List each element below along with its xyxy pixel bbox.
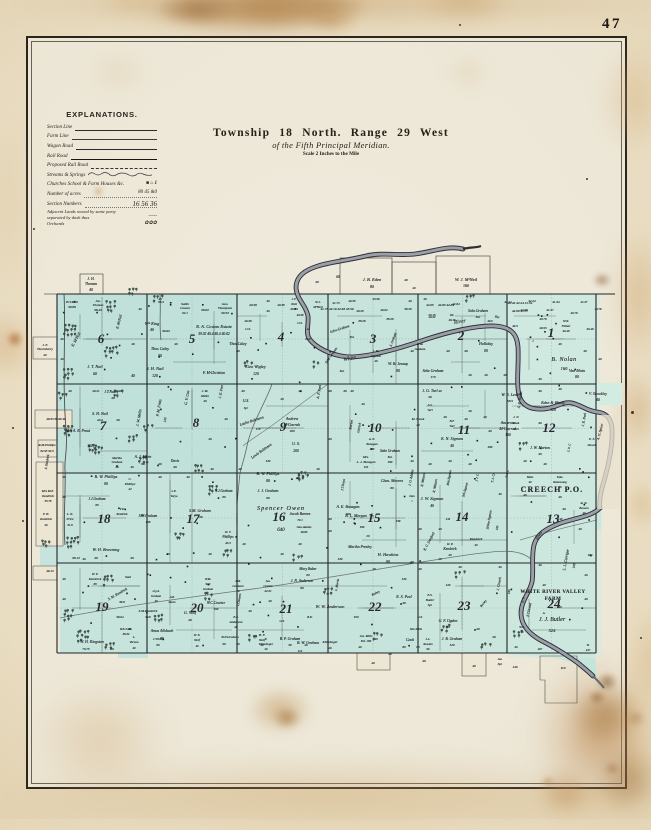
svg-text:40: 40: [328, 529, 332, 533]
svg-text:40.78: 40.78: [595, 307, 602, 311]
svg-text:40: 40: [484, 373, 488, 377]
svg-text:H.V.Rich: H.V.Rich: [65, 300, 78, 304]
svg-text:Est.: Est.: [349, 335, 355, 339]
svg-text:40: 40: [45, 523, 49, 527]
svg-text:Geo.Adams: Geo.Adams: [297, 525, 313, 529]
svg-text:22: 22: [368, 599, 383, 614]
svg-text:40: 40: [468, 409, 472, 413]
svg-text:140: 140: [558, 517, 563, 521]
svg-text:40: 40: [464, 417, 468, 421]
svg-text:A.: A.: [542, 611, 546, 615]
svg-text:Nail: Nail: [290, 302, 297, 306]
svg-text:Mary Baker: Mary Baker: [298, 567, 317, 571]
svg-text:170: 170: [256, 427, 261, 431]
svg-text:40: 40: [584, 597, 588, 601]
svg-text:40: 40: [448, 459, 452, 463]
svg-text:40: 40: [423, 297, 427, 301]
svg-text:40: 40: [428, 462, 432, 466]
svg-text:Scho: Scho: [417, 342, 424, 346]
svg-text:Kendrick: Kendrick: [41, 494, 54, 498]
svg-text:Bowan: Bowan: [579, 506, 589, 510]
svg-text:40: 40: [418, 527, 422, 531]
svg-text:160: 160: [505, 433, 511, 437]
svg-text:Jas.: Jas.: [498, 657, 503, 661]
svg-text:42: 42: [128, 487, 132, 491]
svg-text:40: 40: [248, 609, 252, 613]
svg-text:41.37: 41.37: [581, 300, 588, 304]
svg-text:Turl: Turl: [449, 424, 454, 428]
svg-text:40: 40: [133, 646, 137, 650]
svg-text:49.13: 49.13: [46, 569, 54, 573]
svg-text:40: 40: [155, 599, 159, 603]
svg-text:40: 40: [468, 462, 472, 466]
svg-text:40.36: 40.36: [277, 303, 285, 307]
svg-text:90: 90: [266, 496, 270, 500]
svg-text:40: 40: [372, 567, 376, 571]
svg-text:40: 40: [242, 542, 246, 546]
svg-text:18: 18: [98, 511, 112, 526]
svg-text:40: 40: [62, 417, 66, 421]
svg-text:80: 80: [104, 482, 108, 486]
svg-text:40: 40: [361, 402, 365, 406]
svg-text:W.E.T.R.S.: W.E.T.R.S.: [120, 627, 133, 631]
svg-text:112: 112: [298, 649, 303, 653]
svg-text:40: 40: [374, 359, 378, 363]
svg-text:40: 40: [443, 415, 447, 419]
svg-text:Est.: Est.: [387, 455, 393, 459]
svg-text:40: 40: [538, 421, 542, 425]
svg-text:Felker: Felker: [561, 324, 572, 328]
svg-text:40.32: 40.32: [429, 315, 436, 319]
svg-text:150: 150: [87, 444, 93, 448]
svg-text:40: 40: [116, 418, 120, 422]
svg-text:40: 40: [410, 459, 414, 463]
svg-text:W.: W.: [587, 643, 590, 647]
svg-text:80: 80: [222, 495, 226, 499]
svg-text:41.37: 41.37: [546, 308, 554, 312]
svg-text:20.16: 20.16: [449, 318, 456, 322]
svg-text:40: 40: [410, 349, 414, 353]
svg-text:F. MᶜChristian: F. MᶜChristian: [202, 371, 225, 375]
svg-text:J.G.: J.G.: [427, 403, 433, 407]
svg-text:39.92 40.4 40.4 40.02: 39.92 40.4 40.4 40.02: [198, 332, 230, 336]
svg-text:Vernon: Vernon: [129, 640, 138, 644]
svg-text:36.26: 36.26: [358, 319, 366, 323]
svg-text:12: 12: [543, 420, 557, 435]
svg-text:Ramsoung: Ramsoung: [552, 480, 567, 484]
svg-text:80: 80: [95, 503, 99, 507]
svg-text:E.: E.: [264, 637, 268, 641]
svg-text:70.1: 70.1: [297, 518, 303, 522]
svg-text:43.59: 43.59: [372, 297, 380, 301]
svg-text:40: 40: [458, 565, 462, 569]
svg-text:W.R.: W.R.: [563, 319, 569, 323]
svg-text:40: 40: [523, 459, 527, 463]
svg-text:V. Shockley: V. Shockley: [589, 391, 607, 396]
svg-text:40: 40: [241, 389, 245, 393]
svg-text:40: 40: [498, 492, 502, 496]
svg-text:G. Wolf: G. Wolf: [184, 610, 197, 615]
svg-text:39.04: 39.04: [116, 615, 124, 619]
svg-text:40: 40: [596, 398, 600, 402]
svg-text:40: 40: [412, 286, 416, 290]
svg-text:40: 40: [238, 467, 242, 471]
svg-text:J. W. Sigmon: J. W. Sigmon: [421, 496, 445, 501]
svg-text:55.76: 55.76: [45, 499, 52, 503]
svg-text:Davis: Davis: [168, 600, 177, 604]
svg-text:J.M.: J.M.: [235, 579, 241, 583]
svg-text:FARM: FARM: [545, 597, 562, 602]
svg-text:160: 160: [360, 525, 365, 529]
svg-text:L. J. Bonegan: L. J. Bonegan: [356, 460, 376, 464]
svg-text:21: 21: [279, 601, 293, 616]
svg-text:100: 100: [214, 607, 219, 611]
svg-text:Dewell: Dewell: [586, 443, 596, 447]
svg-text:40: 40: [298, 389, 302, 393]
svg-text:Davis: Davis: [170, 459, 180, 463]
svg-text:S.M.Kendrick: S.M.Kendrick: [139, 609, 158, 613]
svg-text:A.: A.: [306, 327, 310, 331]
svg-text:Klinebeger: Klinebeger: [321, 640, 338, 644]
svg-text:40: 40: [94, 556, 98, 560]
svg-text:40: 40: [62, 475, 66, 479]
svg-text:80: 80: [402, 645, 406, 649]
svg-text:32.1: 32.1: [182, 311, 188, 315]
svg-text:40.28: 40.28: [356, 309, 364, 313]
svg-text:40: 40: [111, 396, 115, 400]
svg-text:40: 40: [538, 452, 542, 456]
svg-text:40: 40: [558, 495, 562, 499]
svg-text:40: 40: [224, 417, 228, 421]
svg-text:39.66: 39.66: [68, 305, 76, 309]
svg-text:Spencer Owen: Spencer Owen: [257, 505, 305, 512]
svg-text:40: 40: [62, 495, 66, 499]
svg-text:8: 8: [193, 415, 200, 430]
svg-text:J. B. Graham: J. B. Graham: [442, 637, 463, 641]
svg-text:Kendrick: Kendrick: [39, 517, 52, 521]
svg-text:42.51: 42.51: [264, 589, 272, 593]
svg-text:40: 40: [173, 465, 177, 469]
svg-text:39.6: 39.6: [119, 600, 125, 604]
svg-text:Graham: Graham: [232, 584, 244, 588]
svg-text:W. J. MᶜNeil: W. J. MᶜNeil: [455, 277, 478, 282]
svg-text:Eden & Wisely: Eden & Wisely: [540, 400, 565, 405]
svg-text:60: 60: [141, 462, 145, 466]
svg-text:40: 40: [62, 597, 66, 601]
svg-text:G. F. Ogdon: G. F. Ogdon: [439, 619, 458, 623]
svg-text:40: 40: [266, 309, 270, 313]
svg-text:B. W. Graham: B. W. Graham: [297, 641, 319, 645]
svg-text:120: 120: [449, 643, 454, 647]
svg-text:40: 40: [543, 462, 547, 466]
svg-text:40: 40: [68, 389, 72, 393]
svg-text:80: 80: [390, 486, 394, 490]
svg-text:W.C.Courier: W.C.Courier: [207, 601, 226, 605]
svg-text:120: 120: [402, 577, 407, 581]
svg-text:3: 3: [369, 331, 377, 346]
svg-text:40: 40: [583, 511, 587, 515]
svg-text:J.J.Graham: J.J.Graham: [89, 497, 106, 501]
svg-text:70.75: 70.75: [82, 647, 90, 651]
svg-text:J. M.: J. M.: [202, 389, 209, 393]
svg-text:Jas.: Jas.: [265, 579, 270, 583]
svg-text:40: 40: [236, 642, 240, 646]
svg-text:40: 40: [558, 605, 562, 609]
svg-text:40: 40: [438, 527, 442, 531]
svg-text:40: 40: [410, 560, 414, 564]
svg-text:40: 40: [60, 357, 64, 361]
svg-text:40.2: 40.2: [97, 418, 103, 422]
svg-text:524: 524: [549, 628, 557, 633]
svg-text:S.M.Graham: S.M.Graham: [139, 514, 158, 518]
svg-text:40: 40: [464, 349, 468, 353]
svg-text:40.78: 40.78: [570, 311, 578, 315]
svg-text:Butler: Butler: [426, 598, 435, 602]
svg-text:B.P.Graham: B.P.Graham: [221, 635, 239, 639]
svg-text:138: 138: [146, 520, 151, 524]
svg-text:W. E. Leak: W. E. Leak: [501, 392, 518, 397]
svg-text:40: 40: [558, 387, 562, 391]
svg-text:40: 40: [203, 399, 207, 403]
svg-text:40: 40: [402, 601, 406, 605]
svg-text:W. E.: W. E.: [194, 633, 201, 637]
svg-text:Holliday: Holliday: [478, 341, 493, 346]
svg-text:40: 40: [158, 297, 162, 301]
svg-text:40: 40: [60, 337, 64, 341]
svg-text:Sim Mills: Sim Mills: [410, 627, 423, 631]
svg-text:40: 40: [118, 389, 122, 393]
svg-text:120: 120: [152, 374, 158, 378]
svg-text:Turya: Turya: [170, 494, 178, 498]
svg-text:120: 120: [338, 557, 343, 561]
svg-text:120: 120: [446, 583, 451, 587]
svg-text:Cook: Cook: [406, 638, 414, 642]
svg-text:41.73 42.19 42.93 43.59: 41.73 42.19 42.93 43.59: [320, 307, 353, 311]
svg-text:J. P.: J. P.: [513, 415, 519, 419]
svg-text:41.73: 41.73: [332, 301, 340, 305]
svg-text:40.02: 40.02: [380, 308, 388, 312]
svg-text:40: 40: [438, 557, 442, 561]
svg-text:40: 40: [416, 423, 420, 427]
svg-text:43.5: 43.5: [225, 541, 231, 545]
svg-text:32.53 32.3: 32.53 32.3: [40, 449, 54, 453]
svg-text:J. H.: J. H.: [87, 277, 94, 281]
svg-text:B.F.: B.F.: [450, 419, 455, 423]
svg-text:CREECH P.O.: CREECH P.O.: [521, 485, 584, 494]
svg-text:Graham: Graham: [151, 594, 162, 598]
svg-text:40: 40: [266, 299, 270, 303]
svg-text:40: 40: [538, 563, 542, 567]
svg-text:40: 40: [166, 552, 170, 556]
svg-text:170: 170: [430, 375, 435, 379]
svg-text:Thomas: Thomas: [93, 303, 104, 307]
svg-text:20: 20: [366, 534, 370, 538]
svg-text:40: 40: [371, 661, 375, 665]
svg-text:J.T.Nail: J.T.Nail: [104, 390, 115, 394]
svg-text:40: 40: [558, 342, 562, 346]
svg-text:Nail: Nail: [304, 337, 310, 341]
svg-text:U.S.: U.S.: [297, 321, 303, 325]
svg-text:40: 40: [130, 465, 134, 469]
svg-text:J. T. Nail: J. T. Nail: [87, 364, 103, 369]
svg-text:Amos Allsbach: Amos Allsbach: [150, 629, 174, 633]
svg-text:MᶜGarrah: MᶜGarrah: [283, 422, 300, 427]
svg-text:80: 80: [110, 647, 114, 651]
svg-text:41.5: 41.5: [513, 427, 519, 431]
svg-text:40: 40: [350, 389, 354, 393]
svg-text:247: 247: [586, 648, 591, 652]
svg-text:40: 40: [328, 389, 332, 393]
svg-text:W. H. Kingston: W. H. Kingston: [80, 640, 104, 644]
svg-text:T.P.: T.P.: [120, 507, 125, 511]
svg-text:160: 160: [289, 429, 294, 433]
svg-text:6: 6: [98, 331, 105, 346]
svg-text:80: 80: [370, 284, 374, 289]
svg-text:40: 40: [210, 467, 214, 471]
svg-text:80: 80: [266, 479, 270, 483]
svg-text:120: 120: [266, 459, 271, 463]
svg-text:40: 40: [265, 647, 269, 651]
svg-text:42.08: 42.08: [520, 308, 528, 312]
svg-text:J.White: J.White: [153, 637, 164, 641]
svg-text:U.S.: U.S.: [245, 327, 251, 331]
svg-text:40: 40: [374, 637, 378, 641]
svg-text:40: 40: [43, 353, 47, 357]
svg-text:Est.: Est.: [475, 315, 481, 319]
svg-text:40: 40: [446, 349, 450, 353]
svg-text:80: 80: [236, 349, 240, 353]
svg-text:80: 80: [446, 625, 450, 629]
svg-text:40: 40: [483, 415, 487, 419]
svg-text:B. W. Phillips: B. W. Phillips: [257, 471, 280, 476]
svg-text:280: 280: [488, 445, 493, 449]
svg-text:W. B. Jessup: W. B. Jessup: [388, 361, 408, 366]
svg-text:Van Main: Van Main: [569, 368, 585, 373]
svg-text:141: 141: [446, 517, 451, 521]
svg-text:M. Hawk: M. Hawk: [411, 417, 425, 421]
svg-text:40: 40: [280, 397, 284, 401]
svg-text:Rowlan: Rowlan: [422, 642, 433, 646]
svg-text:40: 40: [518, 392, 522, 396]
svg-text:Leak: Leak: [512, 421, 520, 425]
svg-text:Price: Price: [66, 517, 74, 521]
svg-text:38.12: 38.12: [72, 556, 80, 560]
svg-text:E. N. Sigmon: E. N. Sigmon: [440, 436, 463, 441]
svg-text:90: 90: [427, 647, 431, 651]
svg-text:40: 40: [422, 659, 426, 663]
svg-text:L.E.: L.E.: [170, 489, 176, 493]
svg-text:150: 150: [353, 615, 358, 619]
svg-text:40.35: 40.35: [348, 299, 356, 303]
svg-text:J.J.Graham: J.J.Graham: [216, 489, 233, 493]
svg-text:Thornsberry: Thornsberry: [37, 347, 54, 351]
svg-text:Chas. Mavers: Chas. Mavers: [381, 478, 404, 483]
svg-text:80: 80: [158, 354, 162, 358]
svg-text:Kendrick: Kendrick: [469, 537, 483, 541]
svg-text:40: 40: [130, 556, 134, 560]
svg-text:80: 80: [386, 560, 390, 564]
svg-text:40: 40: [388, 652, 392, 656]
svg-text:40: 40: [236, 589, 240, 593]
svg-text:40: 40: [428, 395, 432, 399]
svg-text:40.46: 40.46: [562, 329, 570, 333]
svg-text:36.34: 36.34: [123, 632, 130, 636]
svg-text:W. P.: W. P.: [447, 542, 454, 546]
svg-text:497: 497: [538, 647, 543, 651]
svg-text:40: 40: [268, 599, 272, 603]
svg-text:L. K.: L. K.: [66, 512, 73, 516]
svg-text:40: 40: [521, 630, 525, 634]
svg-text:40: 40: [562, 507, 566, 511]
svg-text:40: 40: [538, 377, 542, 381]
svg-text:42.44: 42.44: [504, 300, 512, 304]
svg-text:R. K.: R. K.: [580, 501, 588, 505]
svg-text:40: 40: [476, 627, 480, 631]
svg-text:40: 40: [418, 567, 422, 571]
svg-text:Thos Caley: Thos Caley: [151, 346, 169, 351]
svg-text:44.05: 44.05: [426, 303, 434, 307]
svg-text:J. G. Turl: J. G. Turl: [422, 388, 438, 393]
svg-text:31.8: 31.8: [67, 523, 73, 527]
svg-text:40.53: 40.53: [539, 326, 547, 330]
svg-text:Sebe Graham: Sebe Graham: [423, 369, 444, 373]
svg-text:40: 40: [343, 389, 347, 393]
svg-text:40: 40: [584, 573, 588, 577]
svg-text:40: 40: [82, 557, 86, 561]
svg-text:40: 40: [131, 342, 135, 346]
svg-text:40: 40: [208, 552, 212, 556]
svg-text:Kendrick: Kendrick: [88, 577, 102, 581]
svg-text:39.6: 39.6: [145, 615, 151, 619]
svg-text:40: 40: [328, 437, 332, 441]
svg-text:40: 40: [578, 527, 582, 531]
svg-text:40: 40: [328, 517, 332, 521]
svg-text:W.P.: W.P.: [205, 582, 210, 586]
svg-text:49.53 39.96: 49.53 39.96: [46, 417, 62, 421]
svg-text:Mrs M.E.: Mrs M.E.: [41, 489, 54, 493]
svg-text:4: 4: [277, 329, 285, 344]
svg-text:40: 40: [408, 299, 412, 303]
svg-text:B. Nolan: B. Nolan: [551, 357, 576, 363]
svg-text:Ed.: Ed.: [449, 313, 454, 317]
svg-text:J. N. Anderson: J. N. Anderson: [291, 579, 314, 583]
svg-text:40.38: 40.38: [244, 319, 252, 323]
svg-text:Graham: Graham: [112, 460, 123, 464]
svg-text:A. J. Mivin: A. J. Mivin: [134, 455, 152, 459]
svg-text:Melin: Melin: [200, 394, 209, 398]
svg-text:40: 40: [315, 280, 319, 284]
svg-text:Phillips: Phillips: [124, 482, 136, 486]
svg-text:120: 120: [550, 408, 556, 412]
svg-text:W. W. Anderson: W. W. Anderson: [316, 604, 346, 609]
svg-text:W. H. Browning: W. H. Browning: [93, 547, 120, 552]
svg-text:Riv: Riv: [494, 315, 501, 320]
svg-text:41.34: 41.34: [552, 300, 560, 304]
svg-text:Kendrick: Kendrick: [442, 547, 457, 551]
svg-text:120: 120: [253, 372, 259, 376]
svg-text:J. W. Morton: J. W. Morton: [530, 446, 550, 450]
svg-text:40.48: 40.48: [586, 327, 594, 331]
svg-text:Eden: Eden: [526, 475, 534, 479]
svg-text:J.Q.A.: J.Q.A.: [152, 589, 160, 593]
svg-text:40: 40: [450, 444, 454, 448]
svg-text:38.62: 38.62: [201, 308, 209, 312]
svg-text:W.J.: W.J.: [315, 300, 321, 304]
svg-text:Mrs.: Mrs.: [362, 455, 369, 459]
svg-text:46.63: 46.63: [301, 530, 308, 534]
svg-text:110: 110: [561, 666, 566, 670]
svg-text:80: 80: [416, 645, 420, 649]
